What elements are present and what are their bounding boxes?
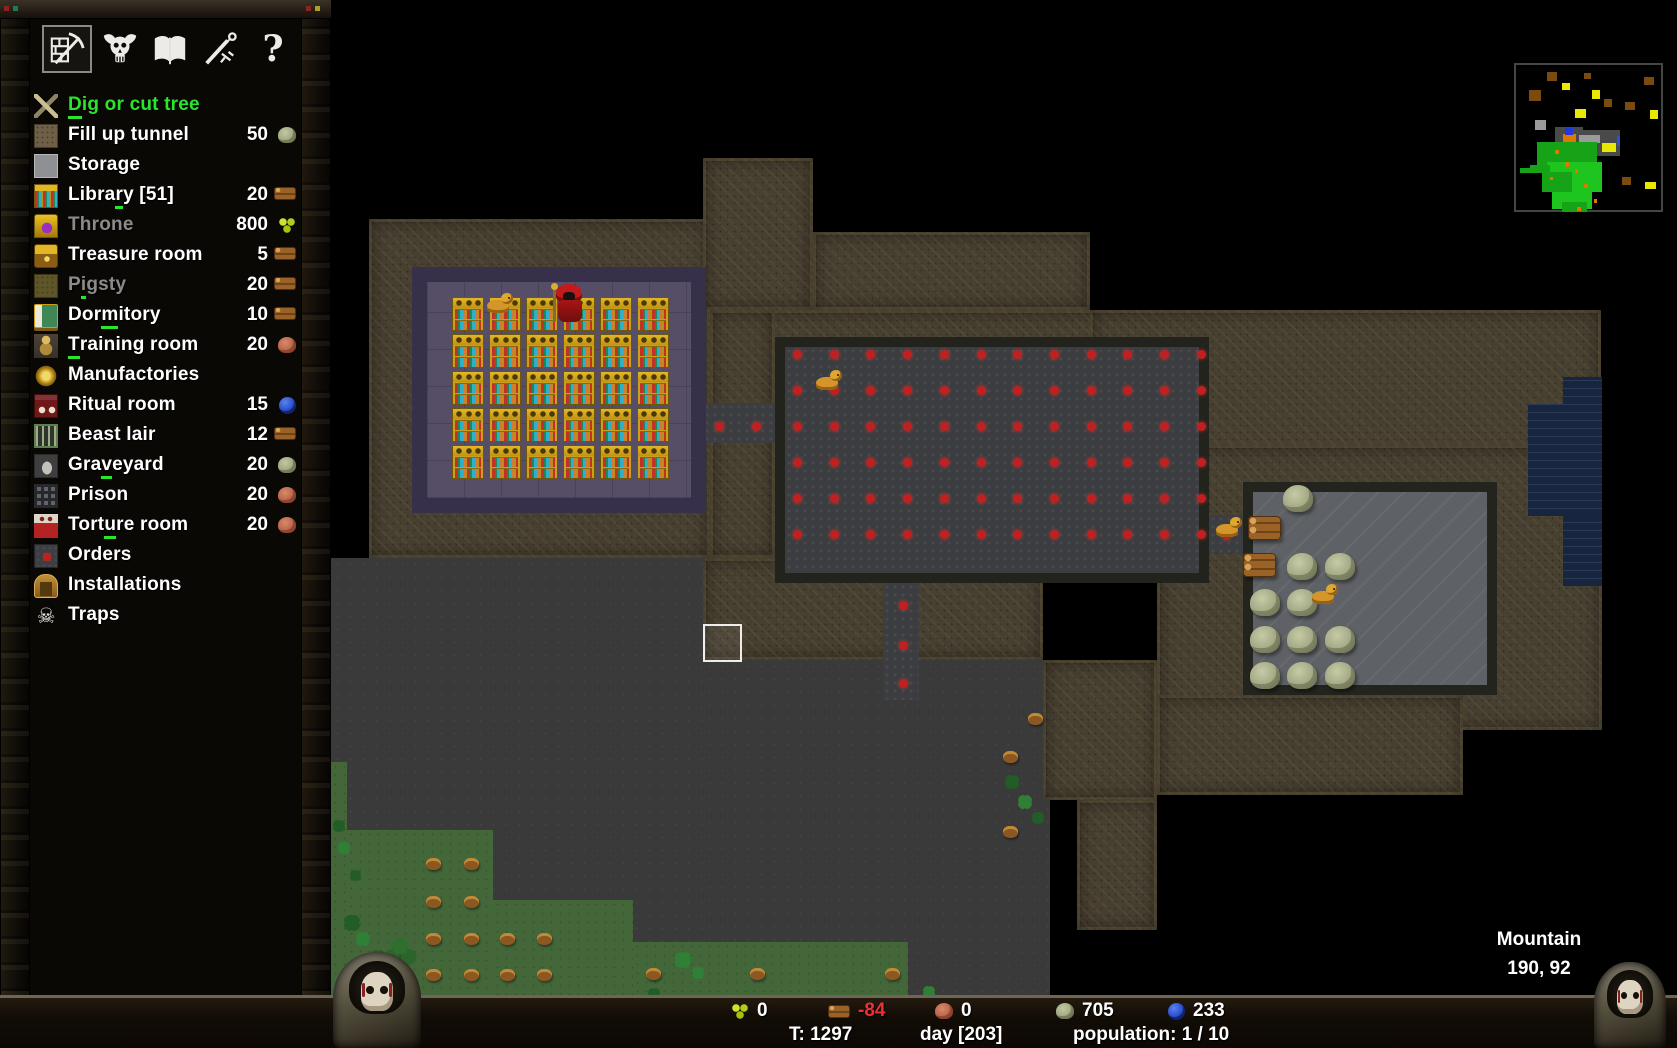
sidebar-item-label: Library [51]: [68, 184, 174, 209]
resource-counter-stone: 705: [1056, 1001, 1114, 1021]
minimap-dwelling: [1547, 72, 1557, 81]
floor-marker: [1050, 386, 1059, 395]
floor-marker: [793, 530, 802, 539]
pigsty-icon: [34, 274, 58, 298]
floor-marker: [1160, 530, 1169, 539]
bookshelf: [452, 445, 484, 479]
minimap-marker: [1584, 184, 1588, 188]
floor-marker: [752, 422, 761, 431]
minimap-site: [1602, 143, 1616, 152]
floor-marker: [1160, 422, 1169, 431]
treasure-icon: [34, 244, 58, 268]
floor-marker: [1123, 530, 1132, 539]
cost-value: 20: [247, 274, 268, 296]
tab-minions[interactable]: [97, 27, 143, 71]
floor-marker: [903, 458, 912, 467]
population-counter: population: 1 / 10: [1073, 1024, 1229, 1046]
imp-worker: [1216, 517, 1242, 537]
bookshelf: [452, 334, 484, 368]
resource-value: 0: [961, 1000, 972, 1022]
bookshelf: [637, 297, 669, 331]
cost-value: 800: [236, 214, 268, 236]
sidebar-item-label: Throne: [68, 214, 134, 236]
floor-marker: [866, 350, 875, 359]
sidebar-item-torture-room[interactable]: Torture room20: [30, 511, 301, 541]
corridor: [703, 403, 775, 443]
tree-stump: [1003, 751, 1018, 763]
bookshelf: [600, 408, 632, 442]
floor-marker: [1160, 350, 1169, 359]
gem-resource-icon: [1168, 1003, 1185, 1020]
minimap-site: [1592, 90, 1600, 99]
hotkey-letter: m: [101, 304, 118, 329]
floor-marker: [866, 458, 875, 467]
floor-marker: [1087, 458, 1096, 467]
wood-resource-icon: [274, 307, 296, 320]
bookshelf: [637, 445, 669, 479]
imp-worker: [487, 293, 513, 313]
stone-pile: [1250, 626, 1280, 653]
floor-marker: [903, 422, 912, 431]
iron-resource-icon: [278, 517, 296, 533]
resource-counter-mana: 0: [731, 1001, 768, 1021]
floor-marker: [1013, 458, 1022, 467]
resource-value: -84: [858, 1000, 885, 1022]
mountain-rock: [1077, 800, 1157, 930]
bookshelf: [600, 371, 632, 405]
tree-stump: [464, 858, 479, 870]
grass: [633, 942, 908, 995]
floor-marker: [1013, 494, 1022, 503]
wood-resource-icon: [274, 427, 296, 440]
clover-patch: [1032, 812, 1044, 824]
sword-icon: [201, 30, 239, 68]
floor-marker: [866, 530, 875, 539]
minimap-marker: [1577, 207, 1581, 211]
minimap-site: [1645, 182, 1656, 189]
sidebar-item-pigsty[interactable]: Pigsty20: [30, 271, 301, 301]
floor-marker: [1160, 458, 1169, 467]
grass: [493, 900, 633, 995]
sidebar-panel: ? Dig or cut treeFill up tunnel50Storage…: [0, 0, 331, 1048]
resource-value: 0: [757, 1000, 768, 1022]
library-icon: [34, 184, 58, 208]
floor-marker: [830, 422, 839, 431]
floor-marker: [1123, 422, 1132, 431]
minimap-forest: [1562, 202, 1587, 212]
sidebar-item-treasure-room[interactable]: Treasure room5: [30, 241, 301, 271]
storage-area-room: [1243, 482, 1497, 695]
wood-resource-icon: [274, 277, 296, 290]
stone-pile: [1250, 589, 1280, 616]
wood-resource-icon: [274, 187, 296, 200]
bookshelf: [489, 371, 521, 405]
floor-marker: [977, 350, 986, 359]
mountain-rock: [813, 232, 1090, 310]
minimap-marker: [1575, 169, 1578, 173]
sidebar-item-label: Dormitory: [68, 304, 161, 329]
imp-worker: [1312, 584, 1338, 604]
clover-patch: [692, 967, 704, 979]
minimap-dwelling: [1622, 177, 1631, 185]
bookshelf: [489, 408, 521, 442]
tree-stump: [426, 896, 441, 908]
floor-marker: [830, 494, 839, 503]
sidebar-item-label: Storage: [68, 154, 140, 176]
sidebar-frame-right: [301, 0, 331, 1048]
sidebar-item-label: Treasure room: [68, 244, 203, 266]
frame-gem-icon: [306, 6, 311, 11]
minimap-dwelling: [1604, 99, 1612, 107]
sidebar-item-label: Training room: [68, 334, 198, 359]
floor-marker: [793, 422, 802, 431]
minimap-water: [1565, 128, 1573, 135]
training-icon: [34, 334, 58, 358]
resource-counter-wood: -84: [828, 1001, 885, 1021]
sidebar-item-traps[interactable]: Traps: [30, 601, 301, 631]
floor-marker: [1160, 494, 1169, 503]
bookshelf: [489, 445, 521, 479]
water: [1563, 377, 1602, 404]
bookshelf: [526, 408, 558, 442]
wood-resource-icon: [828, 1005, 850, 1018]
hotkey-letter: T: [68, 334, 80, 359]
throne-icon: [34, 214, 58, 238]
cost-value: 20: [247, 334, 268, 356]
floor-marker: [977, 458, 986, 467]
bookshelf: [452, 371, 484, 405]
sidebar-item-ritual-room[interactable]: Ritual room15: [30, 391, 301, 421]
minimap-dwelling: [1529, 90, 1541, 101]
tab-technology[interactable]: [147, 27, 193, 71]
floor-marker: [1123, 350, 1132, 359]
floor-marker: [940, 458, 949, 467]
floor-marker: [830, 350, 839, 359]
minimap-marker: [1594, 199, 1597, 203]
sidebar-item-label: Pigsty: [68, 274, 126, 299]
dormitory-icon: [34, 304, 58, 328]
tile-selection-cursor: [703, 624, 742, 662]
minimap-water: [1617, 136, 1620, 146]
tree-stump: [500, 933, 515, 945]
bookshelf: [637, 371, 669, 405]
stone-resource-icon: [1056, 1003, 1074, 1019]
sidebar-item-fill-up-tunnel[interactable]: Fill up tunnel50: [30, 121, 301, 151]
floor-marker: [899, 679, 908, 688]
cost-value: 5: [257, 244, 268, 266]
reaper-statue-left: [333, 952, 421, 1048]
floor-marker: [866, 386, 875, 395]
keeper-wizard: [553, 284, 583, 324]
floor-marker: [940, 422, 949, 431]
floor-marker: [1160, 386, 1169, 395]
wood-pile: [1243, 553, 1276, 577]
sidebar-item-label: Installations: [68, 574, 181, 596]
location-name: Mountain: [1459, 925, 1619, 954]
game-screen: Mountain 190, 92 0-840705233 T: 1297 day…: [0, 0, 1677, 1048]
floor-marker: [1050, 530, 1059, 539]
iron-resource-icon: [278, 487, 296, 503]
manufactory-icon: [34, 364, 58, 388]
tree-stump: [646, 968, 661, 980]
bookshelf: [637, 408, 669, 442]
sidebar-item-manufactories[interactable]: Manufactories: [30, 361, 301, 391]
resource-value: 705: [1082, 1000, 1114, 1022]
tab-help[interactable]: ?: [250, 27, 296, 71]
floor-marker: [1197, 530, 1206, 539]
floor-marker: [715, 422, 724, 431]
tree-stump: [750, 968, 765, 980]
tree-stump: [1003, 826, 1018, 838]
gem-resource-icon: [279, 397, 296, 414]
water: [1563, 516, 1602, 586]
ritual-icon: [34, 394, 58, 418]
stone-resource-icon: [278, 127, 296, 143]
bookshelf: [526, 334, 558, 368]
floor-marker: [1087, 494, 1096, 503]
bookshelf: [452, 408, 484, 442]
wood-pile: [1248, 516, 1281, 540]
resource-value: 233: [1193, 1000, 1225, 1022]
floor-marker: [1050, 458, 1059, 467]
floor-marker: [940, 350, 949, 359]
bookshelf: [600, 297, 632, 331]
clover-patch: [344, 915, 360, 931]
floor-marker: [977, 494, 986, 503]
toolbar: ?: [30, 18, 301, 80]
floor-marker: [1123, 458, 1132, 467]
sidebar-item-label: Ritual room: [68, 394, 176, 416]
mana-resource-icon: [278, 217, 296, 233]
floor-marker: [899, 641, 908, 650]
minimap-site: [1575, 109, 1586, 118]
clover-patch: [356, 932, 370, 946]
sidebar-item-library-51[interactable]: Library [51]20: [30, 181, 301, 211]
sidebar-item-label: Traps: [68, 604, 120, 626]
sidebar-frame-top: [0, 0, 331, 19]
clover-patch: [338, 842, 350, 854]
resource-counter-gem: 233: [1168, 1001, 1225, 1021]
skull-face-icon: [361, 972, 393, 1010]
clover-patch: [333, 820, 345, 832]
floor-marker: [793, 458, 802, 467]
sidebar-item-installations[interactable]: Installations: [30, 571, 301, 601]
cost-value: 12: [247, 424, 268, 446]
stone-pile: [1325, 662, 1355, 689]
bookshelf: [637, 334, 669, 368]
stone-pile: [1287, 626, 1317, 653]
stone-pile: [1250, 662, 1280, 689]
floor-marker: [903, 350, 912, 359]
floor-marker: [1013, 386, 1022, 395]
tree-stump: [426, 969, 441, 981]
minimap-site: [1562, 83, 1570, 90]
floor-marker: [1013, 350, 1022, 359]
bookshelf: [600, 334, 632, 368]
floor-marker: [1050, 350, 1059, 359]
floor-marker: [1123, 494, 1132, 503]
floor-marker: [793, 386, 802, 395]
bookshelf: [563, 334, 595, 368]
floor-marker: [1013, 530, 1022, 539]
sidebar-item-throne[interactable]: Throne800: [30, 211, 301, 241]
tree-stump: [426, 858, 441, 870]
sidebar-item-label: Prison: [68, 484, 128, 506]
tree-stump: [537, 969, 552, 981]
tree-stump: [500, 969, 515, 981]
bookshelf: [452, 297, 484, 331]
sidebar-item-orders[interactable]: Orders: [30, 541, 301, 571]
sidebar-item-dig-or-cut-tree[interactable]: Dig or cut tree: [30, 91, 301, 121]
stone-pile: [1325, 553, 1355, 580]
beast-icon: [34, 424, 58, 448]
stone-resource-icon: [278, 457, 296, 473]
storage-icon: [34, 154, 58, 178]
hotkey-letter: i: [81, 274, 86, 299]
graveyard-icon: [34, 454, 58, 478]
floor-marker: [977, 386, 986, 395]
floor-marker: [1013, 422, 1022, 431]
water: [1528, 404, 1602, 516]
floor-marker: [903, 530, 912, 539]
floor-marker: [1197, 350, 1206, 359]
mountain-rock: [1043, 660, 1157, 800]
floor-marker: [940, 386, 949, 395]
iron-resource-icon: [278, 337, 296, 353]
tree-stump: [464, 969, 479, 981]
floor-marker: [830, 458, 839, 467]
question-mark-icon: ?: [262, 28, 283, 70]
open-book-icon: [151, 30, 189, 68]
floor-marker: [866, 494, 875, 503]
tree-stump: [464, 933, 479, 945]
tunnel-icon: [34, 124, 58, 148]
sidebar-frame-left: [0, 0, 30, 1048]
bookshelf: [563, 371, 595, 405]
sidebar-item-dormitory[interactable]: Dormitory10: [30, 301, 301, 331]
bookshelf: [489, 334, 521, 368]
cost-value: 20: [247, 484, 268, 506]
floor-marker: [903, 386, 912, 395]
cost-value: 10: [247, 304, 268, 326]
imp-worker: [816, 370, 842, 390]
clover-patch: [675, 952, 691, 968]
clover-patch: [350, 870, 361, 881]
minimap-forest: [1520, 168, 1534, 173]
minimap[interactable]: [1514, 63, 1663, 212]
tree-stump: [464, 896, 479, 908]
mountain-rock: [703, 158, 813, 310]
turn-counter: T: 1297: [789, 1024, 852, 1046]
day-counter: day [203]: [920, 1024, 1002, 1046]
floor-marker: [1197, 422, 1206, 431]
torture-icon: [34, 514, 58, 538]
sidebar-item-prison[interactable]: Prison20: [30, 481, 301, 511]
traps-icon: [34, 604, 58, 628]
horned-skull-icon: [101, 30, 139, 68]
installations-icon: [34, 574, 58, 598]
floor-marker: [1123, 386, 1132, 395]
minimap-site: [1650, 110, 1658, 119]
minimap-marker: [1565, 162, 1569, 167]
dig-icon: [34, 94, 58, 118]
resource-counter-iron: 0: [935, 1001, 972, 1021]
stone-pile: [1287, 553, 1317, 580]
iron-resource-icon: [935, 1003, 953, 1019]
floor-marker: [1087, 386, 1096, 395]
stone-pile: [1287, 662, 1317, 689]
frame-gem-icon: [4, 6, 9, 11]
prison-icon: [34, 484, 58, 508]
wood-resource-icon: [274, 247, 296, 260]
cost-value: 15: [247, 394, 268, 416]
sidebar-item-beast-lair[interactable]: Beast lair12: [30, 421, 301, 451]
bookshelf: [563, 408, 595, 442]
sidebar-item-label: Fill up tunnel: [68, 124, 189, 146]
minimap-marker: [1555, 150, 1559, 154]
sidebar-item-training-room[interactable]: Training room20: [30, 331, 301, 361]
minimap-rock: [1535, 120, 1546, 130]
floor-marker: [940, 494, 949, 503]
hotkey-letter: u: [104, 514, 116, 539]
minimap-dwelling: [1644, 77, 1654, 85]
clover-patch: [1018, 795, 1032, 809]
minimap-marker: [1550, 177, 1553, 180]
tab-military[interactable]: [197, 27, 243, 71]
floor-marker: [1087, 422, 1096, 431]
reaper-statue-right: [1594, 962, 1666, 1048]
sidebar-item-label: Dig or cut tree: [68, 94, 200, 119]
frame-gem-icon: [315, 6, 320, 11]
hotkey-letter: D: [68, 94, 82, 119]
floor-marker: [830, 530, 839, 539]
cost-value: 20: [247, 514, 268, 536]
floor-marker: [1087, 530, 1096, 539]
sidebar-item-label: Manufactories: [68, 364, 199, 386]
floor-marker: [899, 601, 908, 610]
mountain-rock: [1157, 695, 1463, 795]
bookshelf: [563, 445, 595, 479]
stone-pile: [1283, 485, 1313, 512]
floor-marker: [1050, 422, 1059, 431]
floor-marker: [866, 422, 875, 431]
sidebar-item-label: Graveyard: [68, 454, 164, 479]
minimap-dwelling: [1584, 73, 1591, 79]
sidebar-item-label: Orders: [68, 544, 132, 566]
pickaxe-wall-icon: [48, 30, 86, 68]
floor-marker: [1197, 494, 1206, 503]
sidebar-item-storage[interactable]: Storage: [30, 151, 301, 181]
sidebar-item-graveyard[interactable]: Graveyard20: [30, 451, 301, 481]
floor-marker: [977, 530, 986, 539]
bookshelf: [526, 445, 558, 479]
stone-pile: [1325, 626, 1355, 653]
orders-icon: [34, 544, 58, 568]
hotkey-letter: v: [101, 454, 112, 479]
frame-gem-icon: [13, 6, 18, 11]
tree-stump: [1028, 713, 1043, 725]
tree-stump: [537, 933, 552, 945]
tab-build[interactable]: [44, 27, 90, 71]
tree-stump: [885, 968, 900, 980]
cost-value: 20: [247, 454, 268, 476]
floor-marker: [1197, 386, 1206, 395]
floor-marker: [977, 422, 986, 431]
floor-marker: [940, 530, 949, 539]
floor-marker: [793, 494, 802, 503]
floor-marker: [1197, 458, 1206, 467]
floor-marker: [903, 494, 912, 503]
